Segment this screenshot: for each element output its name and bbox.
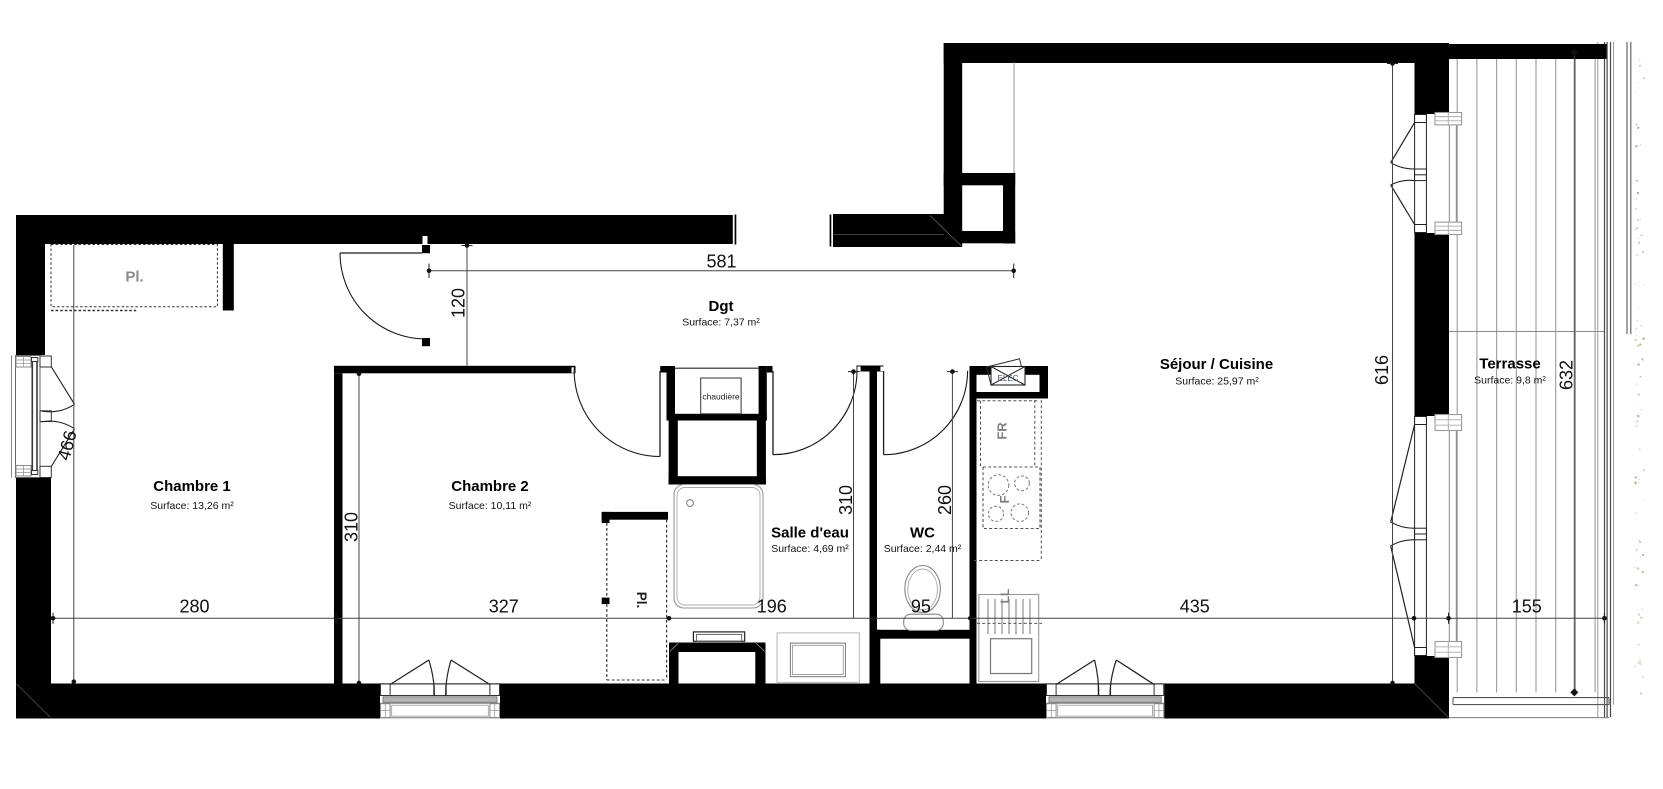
svg-text:Pl.: Pl.: [634, 592, 649, 609]
svg-text:Chambre 1: Chambre 1: [153, 478, 231, 495]
svg-text:Surface: 10,11 m²: Surface: 10,11 m²: [449, 500, 532, 512]
svg-text:Surface: 7,37 m²: Surface: 7,37 m²: [682, 317, 760, 329]
svg-text:ELEC: ELEC: [998, 374, 1019, 383]
svg-text:WC: WC: [910, 525, 935, 542]
svg-text:Terrasse: Terrasse: [1479, 356, 1540, 373]
svg-text:Séjour / Cuisine: Séjour / Cuisine: [1160, 356, 1273, 373]
svg-text:260: 260: [935, 485, 955, 515]
svg-text:Surface: 4,69 m²: Surface: 4,69 m²: [771, 543, 849, 555]
svg-text:Dgt: Dgt: [709, 298, 734, 315]
svg-text:Surface: 13,26 m²: Surface: 13,26 m²: [150, 500, 234, 512]
svg-text:Chambre 2: Chambre 2: [451, 478, 529, 495]
svg-text:95: 95: [911, 597, 931, 617]
svg-text:327: 327: [489, 597, 519, 617]
svg-text:Surface: 2,44 m²: Surface: 2,44 m²: [884, 543, 962, 555]
svg-text:435: 435: [1180, 597, 1210, 617]
svg-text:632: 632: [1557, 360, 1577, 390]
svg-text:chaudière: chaudière: [702, 392, 740, 402]
svg-text:F: F: [997, 495, 1012, 503]
svg-text:310: 310: [342, 512, 362, 542]
svg-text:Salle d'eau: Salle d'eau: [771, 525, 849, 542]
svg-text:Surface: 25,97 m²: Surface: 25,97 m²: [1175, 376, 1259, 388]
svg-text:Surface: 9,8 m²: Surface: 9,8 m²: [1474, 375, 1546, 387]
svg-text:616: 616: [1372, 355, 1392, 385]
svg-text:FR: FR: [995, 422, 1010, 440]
svg-text:120: 120: [449, 288, 469, 318]
svg-text:280: 280: [179, 597, 209, 617]
svg-text:310: 310: [836, 485, 856, 515]
svg-text:196: 196: [757, 597, 787, 617]
svg-text:581: 581: [706, 252, 736, 272]
svg-text:LL: LL: [998, 589, 1012, 604]
svg-text:Pl.: Pl.: [125, 269, 143, 286]
svg-text:155: 155: [1512, 597, 1542, 617]
